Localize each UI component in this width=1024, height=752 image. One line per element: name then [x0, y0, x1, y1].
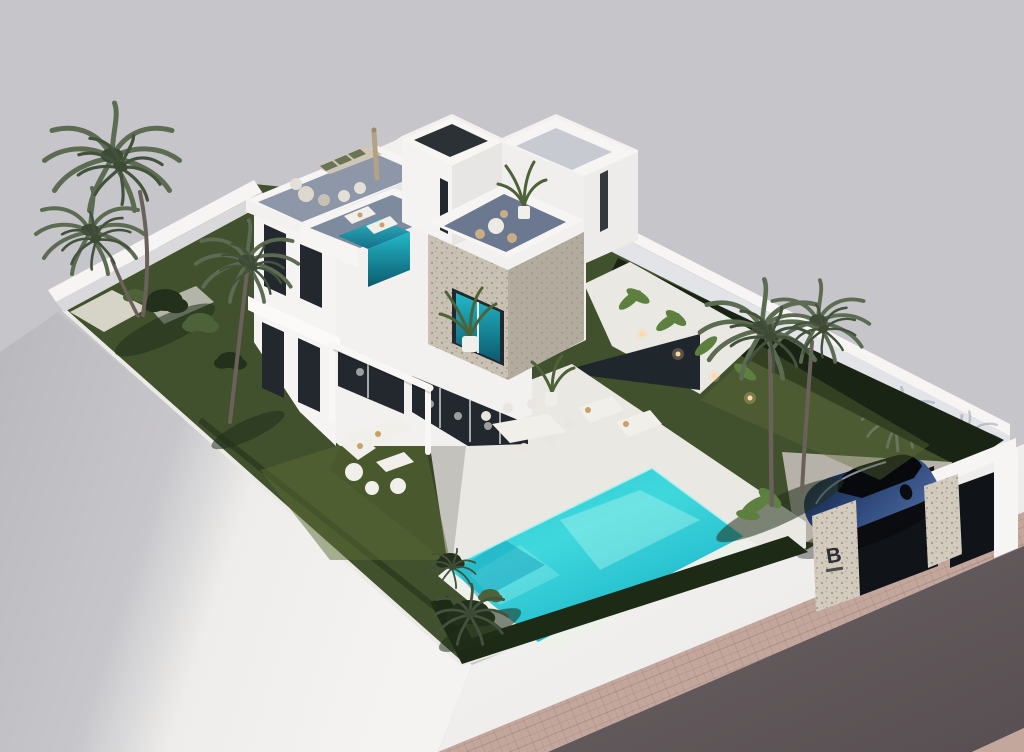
entrance-pillar-right	[924, 474, 962, 568]
villa-3d-render: B	[0, 0, 1024, 752]
render-canvas: B	[0, 0, 1024, 752]
entrance-pillar-logo: B	[812, 500, 860, 612]
corner-wall-block	[994, 448, 1018, 558]
